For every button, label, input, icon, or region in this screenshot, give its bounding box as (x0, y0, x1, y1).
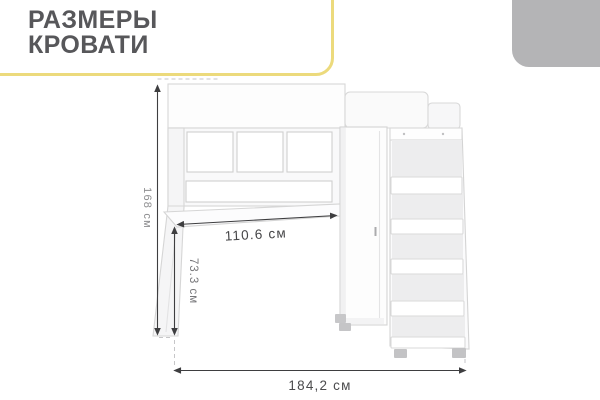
shelf-lower-opening (186, 181, 332, 202)
wardrobe-foot (339, 323, 351, 331)
height-dimension-label: 168 см (141, 187, 153, 229)
bed-dimensions-infographic: РАЗМЕРЫ КРОВАТИ (0, 0, 600, 400)
screw-dot (403, 133, 405, 135)
ladder-foot-right (452, 348, 466, 358)
ladder-step (391, 177, 462, 194)
shelf-window-1 (187, 132, 233, 172)
ladder-foot-left (394, 349, 407, 358)
desk-width-dimension-label: 110.6 см (224, 225, 287, 243)
guard-rail-right (428, 103, 460, 129)
guard-rail-middle (345, 92, 428, 128)
shelf-window-2 (237, 132, 283, 172)
screw-dot (442, 133, 444, 135)
ladder-step (391, 259, 463, 274)
ladder-top-bar (390, 128, 462, 140)
bed-left-upright (168, 128, 184, 208)
ladder-step (391, 219, 463, 234)
ladder-step (391, 301, 464, 316)
loft-bed-drawing (153, 84, 469, 358)
total-width-dimension-label: 184,2 см (288, 378, 351, 393)
bed-diagram: 168 см 110.6 см 73.3 см 184,2 см (0, 0, 600, 400)
desk-height-dimension-label: 73.3 см (187, 258, 199, 304)
shelf-window-3 (287, 132, 332, 172)
ladder-step (391, 337, 465, 348)
headboard-panel (168, 84, 345, 128)
desk-caster (335, 314, 346, 323)
wardrobe-side-shade (341, 128, 346, 324)
